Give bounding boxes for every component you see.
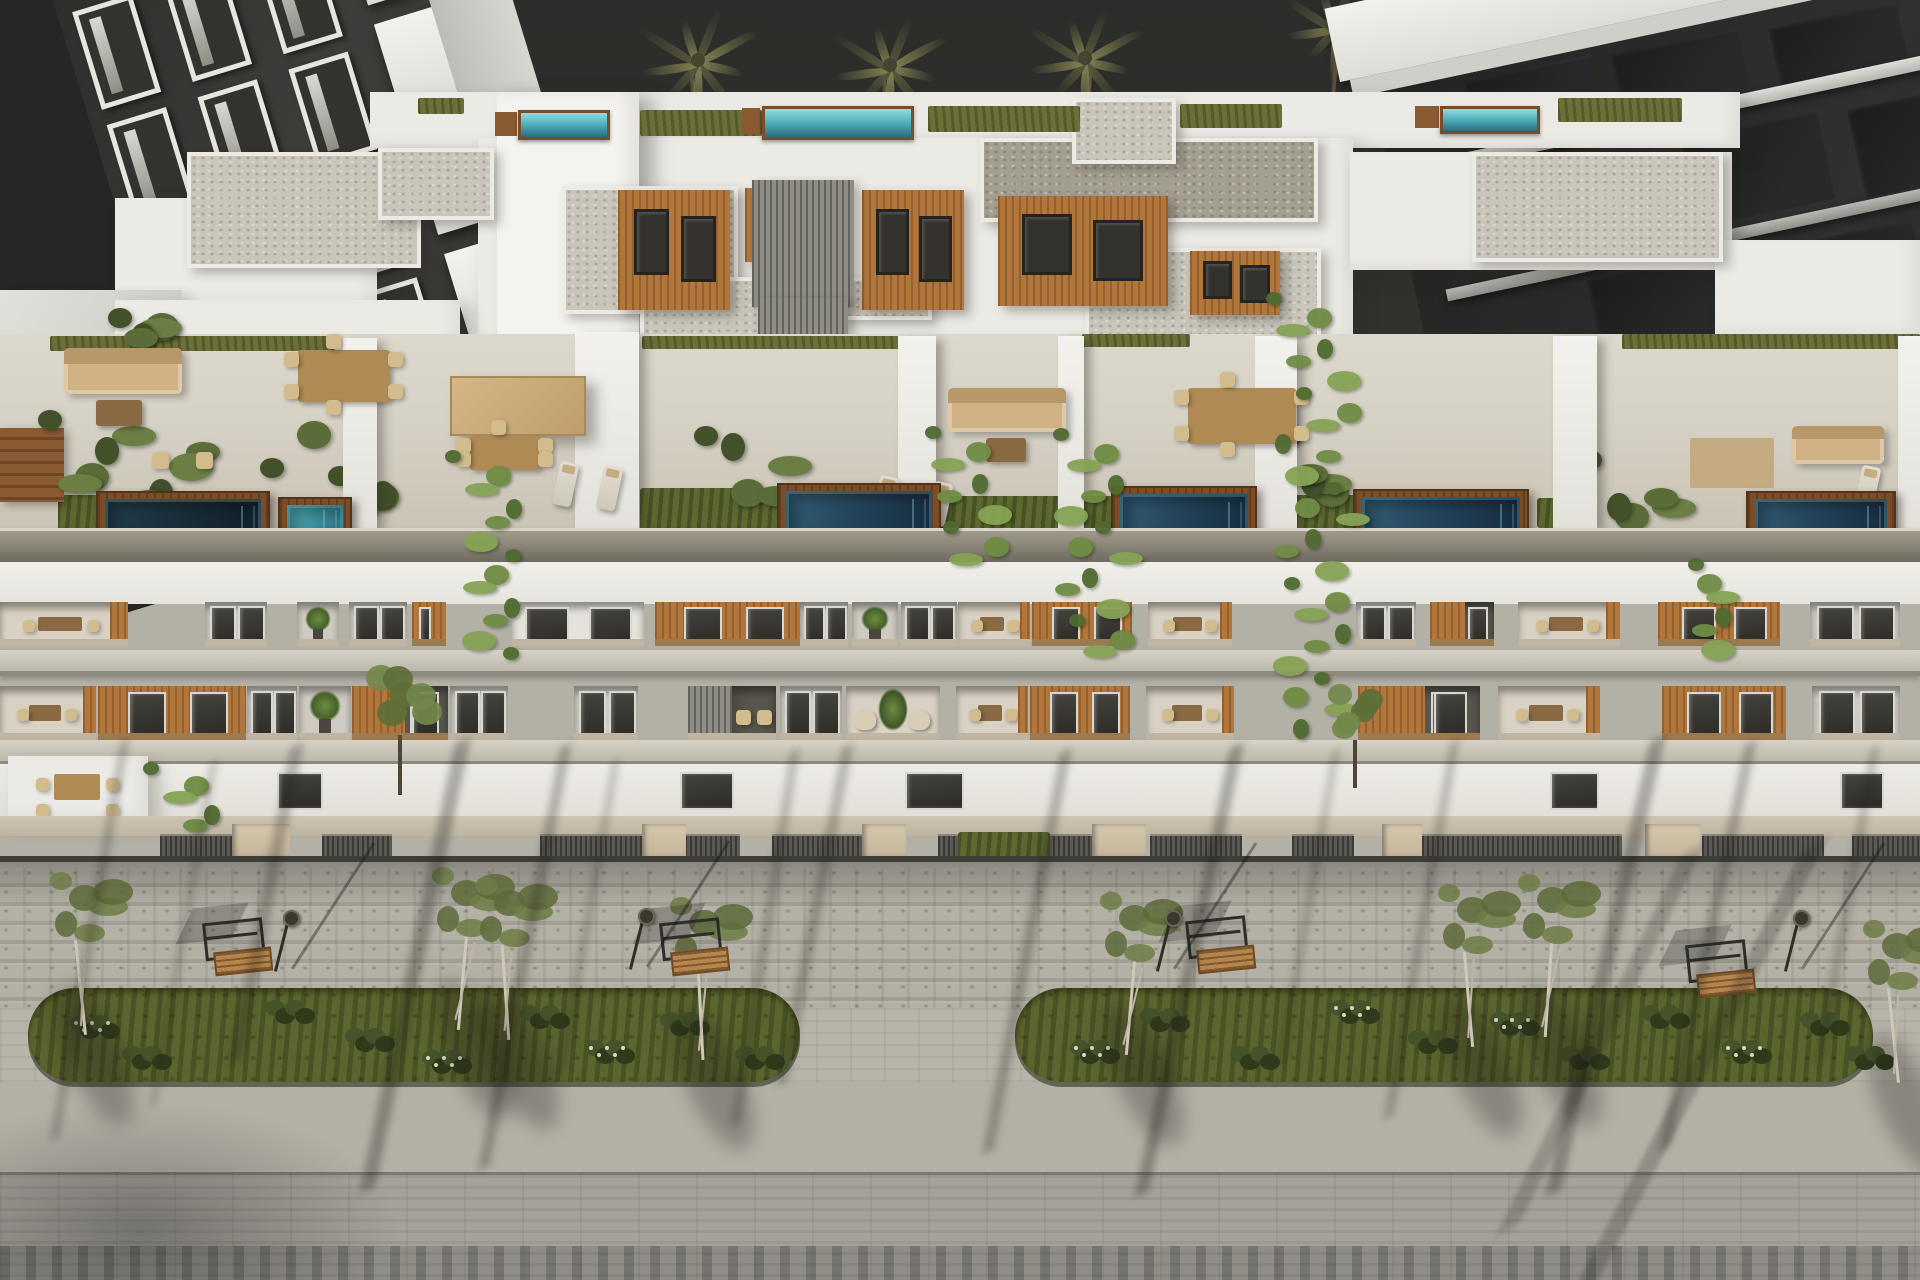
ground-balcony-box [8,756,148,820]
shrub-foliage [1830,1020,1850,1036]
tree-foliage [1359,689,1383,710]
vine-foliage [1304,640,1329,653]
lamp-head [638,908,655,925]
vine-foliage [504,598,520,618]
shrub-flowers [1098,1053,1102,1057]
window [455,691,480,738]
interior-chair [1005,709,1017,721]
vine-foliage [1110,630,1135,650]
vine-foliage [503,647,519,660]
balcony-floor [450,733,508,740]
interior-table [38,617,82,630]
balcony-floor [901,639,957,646]
interior-wood-wall [1018,686,1028,740]
interior-chair [1567,709,1579,721]
balcony-floor [1518,639,1620,646]
window [1050,692,1078,737]
tree-foliage [1542,926,1573,944]
tree-foliage [1100,892,1122,910]
balcony-floor [1430,639,1494,646]
vine-foliage [462,631,496,651]
vine-foliage [1285,466,1319,486]
balcony-opening [852,602,898,646]
interior-table [1173,617,1202,630]
balcony-floor [780,733,842,740]
wicker-chair [854,710,876,730]
hanging-vine [925,426,1021,571]
balcony-floor [688,733,776,740]
road-edge-band [0,1246,1920,1280]
balcony-floor [0,639,128,646]
ground-green-patch [958,832,1050,858]
balcony-opening [299,686,351,740]
balcony-opening [688,686,776,740]
tree-foliage [1328,684,1352,705]
tree-foliage [93,879,133,905]
shrub-foliage [1170,1016,1190,1032]
balcony-opening [297,602,339,646]
balcony-floor [1810,639,1900,646]
balcony-floor [958,639,1030,646]
balcony-plant [878,688,908,731]
balcony-opening [0,686,96,740]
potted-plant [309,690,340,722]
tree-foliage [1887,972,1918,990]
vine-foliage [505,549,521,562]
bench-seat [1196,944,1256,974]
balcony-floor [299,733,351,740]
vine-foliage [183,819,208,832]
wicker-chair [908,710,930,730]
hanging-vine [445,450,527,665]
ground-window [680,772,734,810]
balcony-floor [1498,733,1600,740]
balcony-floor [1148,639,1232,646]
window [1092,692,1120,737]
entry-niche [862,824,906,858]
balcony-opening [1662,686,1786,740]
shrub-foliage [375,1036,395,1052]
vine-foliage [483,614,508,627]
shrub-foliage [550,1013,570,1029]
bench [202,917,272,983]
lamp-head [283,910,300,927]
balcony-opening [901,602,957,646]
interior-chair [17,709,29,721]
window [274,691,296,738]
vine-foliage [1067,459,1101,472]
interior-table [29,705,62,721]
vine-foliage [163,791,197,804]
vine-foliage [1294,608,1328,621]
shrub-flowers [1358,1013,1362,1017]
tree-foliage [377,700,407,726]
vine-foliage [465,483,499,496]
lamp-head [1793,910,1810,927]
shrub-flowers [1518,1025,1522,1029]
interior-table [1529,705,1564,721]
shrub-flowers [1502,1025,1506,1029]
balcony-floor [98,733,246,740]
shrub [1640,1005,1686,1031]
ground-window [1840,772,1884,810]
vine-foliage [1082,568,1098,588]
shrub [345,1028,391,1054]
vine-foliage [1096,599,1130,619]
shrub-flowers [442,1056,446,1060]
shrub [735,1046,781,1072]
tree-foliage [1863,920,1885,938]
interior-chair [969,709,981,721]
window [1819,691,1855,738]
entry-niche [1645,824,1700,858]
vine-foliage [1701,640,1735,660]
entry-niche [232,824,290,858]
interior-wood-wall [83,686,96,740]
balcony-opening [98,686,246,740]
shrub-flowers [605,1046,609,1050]
shrub-flowers [613,1053,617,1057]
vine-foliage [1108,475,1124,495]
building-shade [0,862,1920,908]
vine-foliage [1109,552,1143,565]
balcony-opening [450,686,508,740]
interior-wood-wall [1586,686,1600,740]
shrub-foliage [295,1008,315,1024]
tree-foliage [432,867,454,885]
vine-foliage [1054,506,1088,526]
vine-foliage [485,516,510,529]
vine-foliage [972,474,988,494]
hanging-vine [1688,558,1740,658]
interior-chair [23,620,35,632]
shrub-flowers [1750,1053,1754,1057]
balcony-floor [800,639,848,646]
balcony-floor [205,639,267,646]
balcony-floor [1662,733,1786,740]
vine-foliage [463,581,497,594]
interior-chair [1205,620,1217,632]
vine-foliage [984,537,1009,557]
ground-balcony-table [54,774,100,800]
balcony-floor [846,733,940,740]
vine-foliage [1283,687,1308,707]
vine-foliage [1068,537,1093,557]
balcony-opening [1810,602,1900,646]
window [251,691,273,738]
vine-foliage [1314,672,1330,685]
vine-foliage [1273,656,1307,676]
interior-table [1172,705,1202,721]
balcony-opening [956,686,1028,740]
street-level [0,0,1920,420]
interior-chair [1007,620,1019,632]
vine-foliage [1081,490,1106,503]
floor-slab [0,740,1920,766]
balcony-opening [958,602,1030,646]
balcony-opening [205,602,267,646]
vine-foliage [464,532,498,552]
vine-foliage [1295,498,1320,518]
vine-foliage [506,499,522,519]
tree-foliage [1124,944,1155,962]
balcony-floor [574,733,638,740]
vine-foliage [1094,444,1119,464]
vine-foliage [1095,521,1111,534]
shrub-flowers [1366,1006,1370,1010]
shrub [1800,1012,1846,1038]
window [609,691,636,738]
vine-foliage [1083,645,1117,658]
shrub-flowers [426,1056,430,1060]
tree-foliage [50,872,72,890]
window [813,691,839,738]
shrub-flowers [597,1053,601,1057]
tree-foliage [74,924,105,942]
tree-foliage [475,877,497,895]
balcony-opening [655,602,801,646]
window [785,691,811,738]
shrub-flowers [1494,1018,1498,1022]
balcony-opening [780,686,842,740]
balcony-opening [512,602,644,646]
balcony-opening [0,602,128,646]
shrub-foliage [1260,1054,1280,1070]
balcony-opening [1030,686,1130,740]
balcony-floor [852,639,898,646]
shrub-flowers [1734,1053,1738,1057]
balcony-chair [757,710,772,725]
balcony-floor [956,733,1028,740]
shrub-flowers [1758,1046,1762,1050]
balcony-floor [297,639,339,646]
balcony-chair [736,710,751,725]
interior-chair [1162,709,1174,721]
ground-balcony-chair [106,778,119,791]
interior-chair [1163,620,1175,632]
shrub-flowers [1074,1046,1078,1050]
vine-foliage [1692,624,1717,637]
shrub-flowers [1082,1053,1086,1057]
window [1860,691,1896,738]
interior-chair [87,620,99,632]
interior-wood-wall [1222,686,1234,740]
ground-window [1550,772,1599,810]
window [1434,692,1467,737]
vine-foliage [1069,614,1085,627]
balcony-opening [1812,686,1900,740]
vine-foliage [143,762,159,775]
shrub-foliage [152,1054,172,1070]
tree-foliage [1518,874,1540,892]
vine-foliage [931,458,965,471]
shrub-flowers [1342,1013,1346,1017]
tree-foliage [1481,891,1521,917]
shrub [1330,1000,1376,1026]
interior-table [980,617,1004,630]
shrub [1722,1040,1768,1066]
tree-trunk [1353,740,1357,788]
vine-foliage [1325,592,1350,612]
balcony-louver-wall [688,686,732,740]
balcony-opening [1146,686,1234,740]
vine-foliage [1688,558,1704,571]
entry-niche [642,824,686,858]
balcony-floor [1146,733,1234,740]
window [190,692,228,737]
vine-foliage [966,442,991,462]
vine-foliage [1274,545,1299,558]
interior-chair [971,620,983,632]
vine-foliage [1315,561,1349,581]
vine-foliage [1316,450,1341,463]
shrub-foliage [1752,1048,1772,1064]
vine-foliage [943,521,959,534]
interior-chair [65,709,77,721]
balcony-opening [800,602,848,646]
window [481,691,506,738]
balcony-floor [349,639,407,646]
interior-chair [1536,620,1548,632]
balcony-opening [349,602,407,646]
shrub [585,1040,631,1066]
balcony-opening [1518,602,1620,646]
vine-foliage [1293,719,1309,739]
tree-foliage [1561,881,1601,907]
bench [1685,939,1755,1005]
shrub-flowers [621,1046,625,1050]
vine-foliage [1706,591,1740,604]
vine-foliage [978,505,1012,525]
vine-foliage [1336,513,1370,526]
ground-balcony-chair [36,778,49,791]
ground-window [905,772,964,810]
hanging-vine [143,762,225,837]
vine-foliage [1275,434,1291,454]
lamp-head [1165,910,1182,927]
window [579,691,606,738]
shrub-flowers [1334,1006,1338,1010]
balcony-opening [1148,602,1232,646]
vine-foliage [1284,577,1300,590]
vine-foliage [1305,529,1321,549]
balcony-floor [512,639,644,646]
balcony-floor [655,639,801,646]
balcony-opening [412,602,446,646]
vine-foliage [1306,419,1340,432]
window [128,692,166,737]
shrub-foliage [765,1054,785,1070]
tree-foliage [406,683,436,709]
tree-foliage [518,884,558,910]
floor-slab [0,650,1920,676]
balcony-floor [1030,733,1130,740]
vine-foliage [1055,583,1080,596]
balcony-floor [247,733,297,740]
window [1687,692,1721,737]
shrub-foliage [615,1048,635,1064]
ground-window [277,772,323,810]
tree-foliage [1438,884,1460,902]
interior-chair [1206,709,1218,721]
architectural-render-scene [0,0,1920,1280]
balcony-floor [1812,733,1900,740]
vine-foliage [445,450,461,463]
bench-seat [213,946,273,976]
shrub [265,1000,311,1026]
bench [1185,915,1255,981]
vine-foliage [1053,428,1069,441]
shrub [1230,1046,1276,1072]
shrub-flowers [1350,1006,1354,1010]
vine-foliage [1326,482,1342,495]
tree-trunk [398,735,402,795]
balcony-opening [846,686,940,740]
shrub-flowers [1726,1046,1730,1050]
interior-chair [1516,709,1528,721]
entry-niche [1092,824,1146,858]
tree-foliage [1336,712,1360,733]
shrub-flowers [589,1046,593,1050]
interior-chair [1587,620,1599,632]
bench [659,917,729,983]
vine-foliage [937,490,962,503]
balcony-floor [0,733,96,740]
vine-foliage [1715,607,1731,627]
entry-niche [1382,824,1422,858]
balcony-opening [574,686,638,740]
bench-seat [1696,968,1756,998]
balcony-opening [1356,602,1416,646]
vine-foliage [949,553,983,566]
shrub-flowers [1510,1018,1514,1022]
shrub-foliage [1360,1008,1380,1024]
balcony-opening [1498,686,1600,740]
balcony-floor [1358,733,1480,740]
vine-foliage [1335,624,1351,644]
balcony-opening [1430,602,1494,646]
shrub-foliage [1670,1013,1690,1029]
tree-foliage [499,929,530,947]
vine-foliage [925,426,941,439]
balcony-floor [412,639,446,646]
hanging-vine [1053,428,1141,663]
interior-table [978,705,1002,721]
balcony-opening [247,686,297,740]
shrub-flowers [434,1063,438,1067]
shrub-flowers [1742,1046,1746,1050]
tree-foliage [1462,936,1493,954]
interior-table [1549,617,1584,630]
bench-seat [670,946,730,976]
shrub-flowers [1090,1046,1094,1050]
balcony-floor [1356,639,1416,646]
window [1739,692,1773,737]
